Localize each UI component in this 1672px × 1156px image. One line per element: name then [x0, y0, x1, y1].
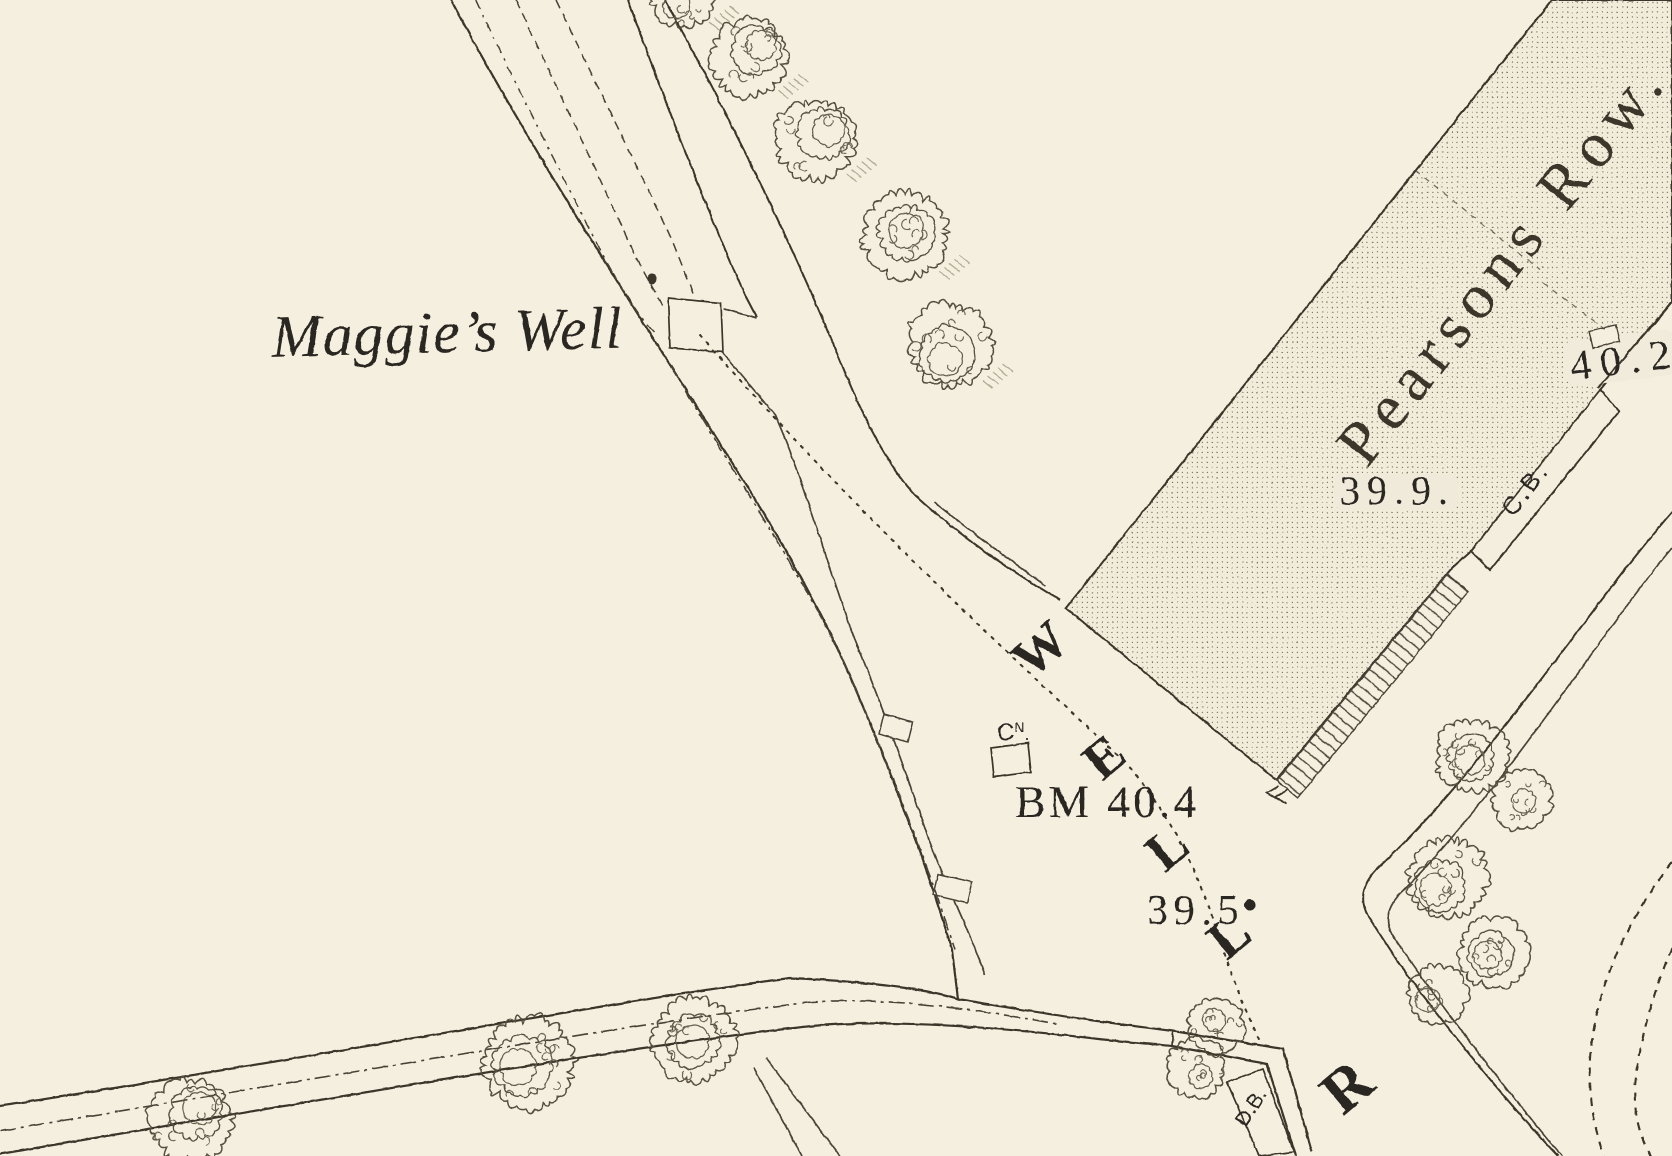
svg-text:Maggie’s Well: Maggie’s Well	[270, 295, 624, 370]
svg-text:CN.: CN.	[997, 719, 1029, 746]
svg-text:BM 40.4: BM 40.4	[1015, 776, 1200, 827]
svg-text:39.5: 39.5	[1147, 888, 1245, 934]
svg-text:39.9.: 39.9.	[1340, 468, 1455, 513]
